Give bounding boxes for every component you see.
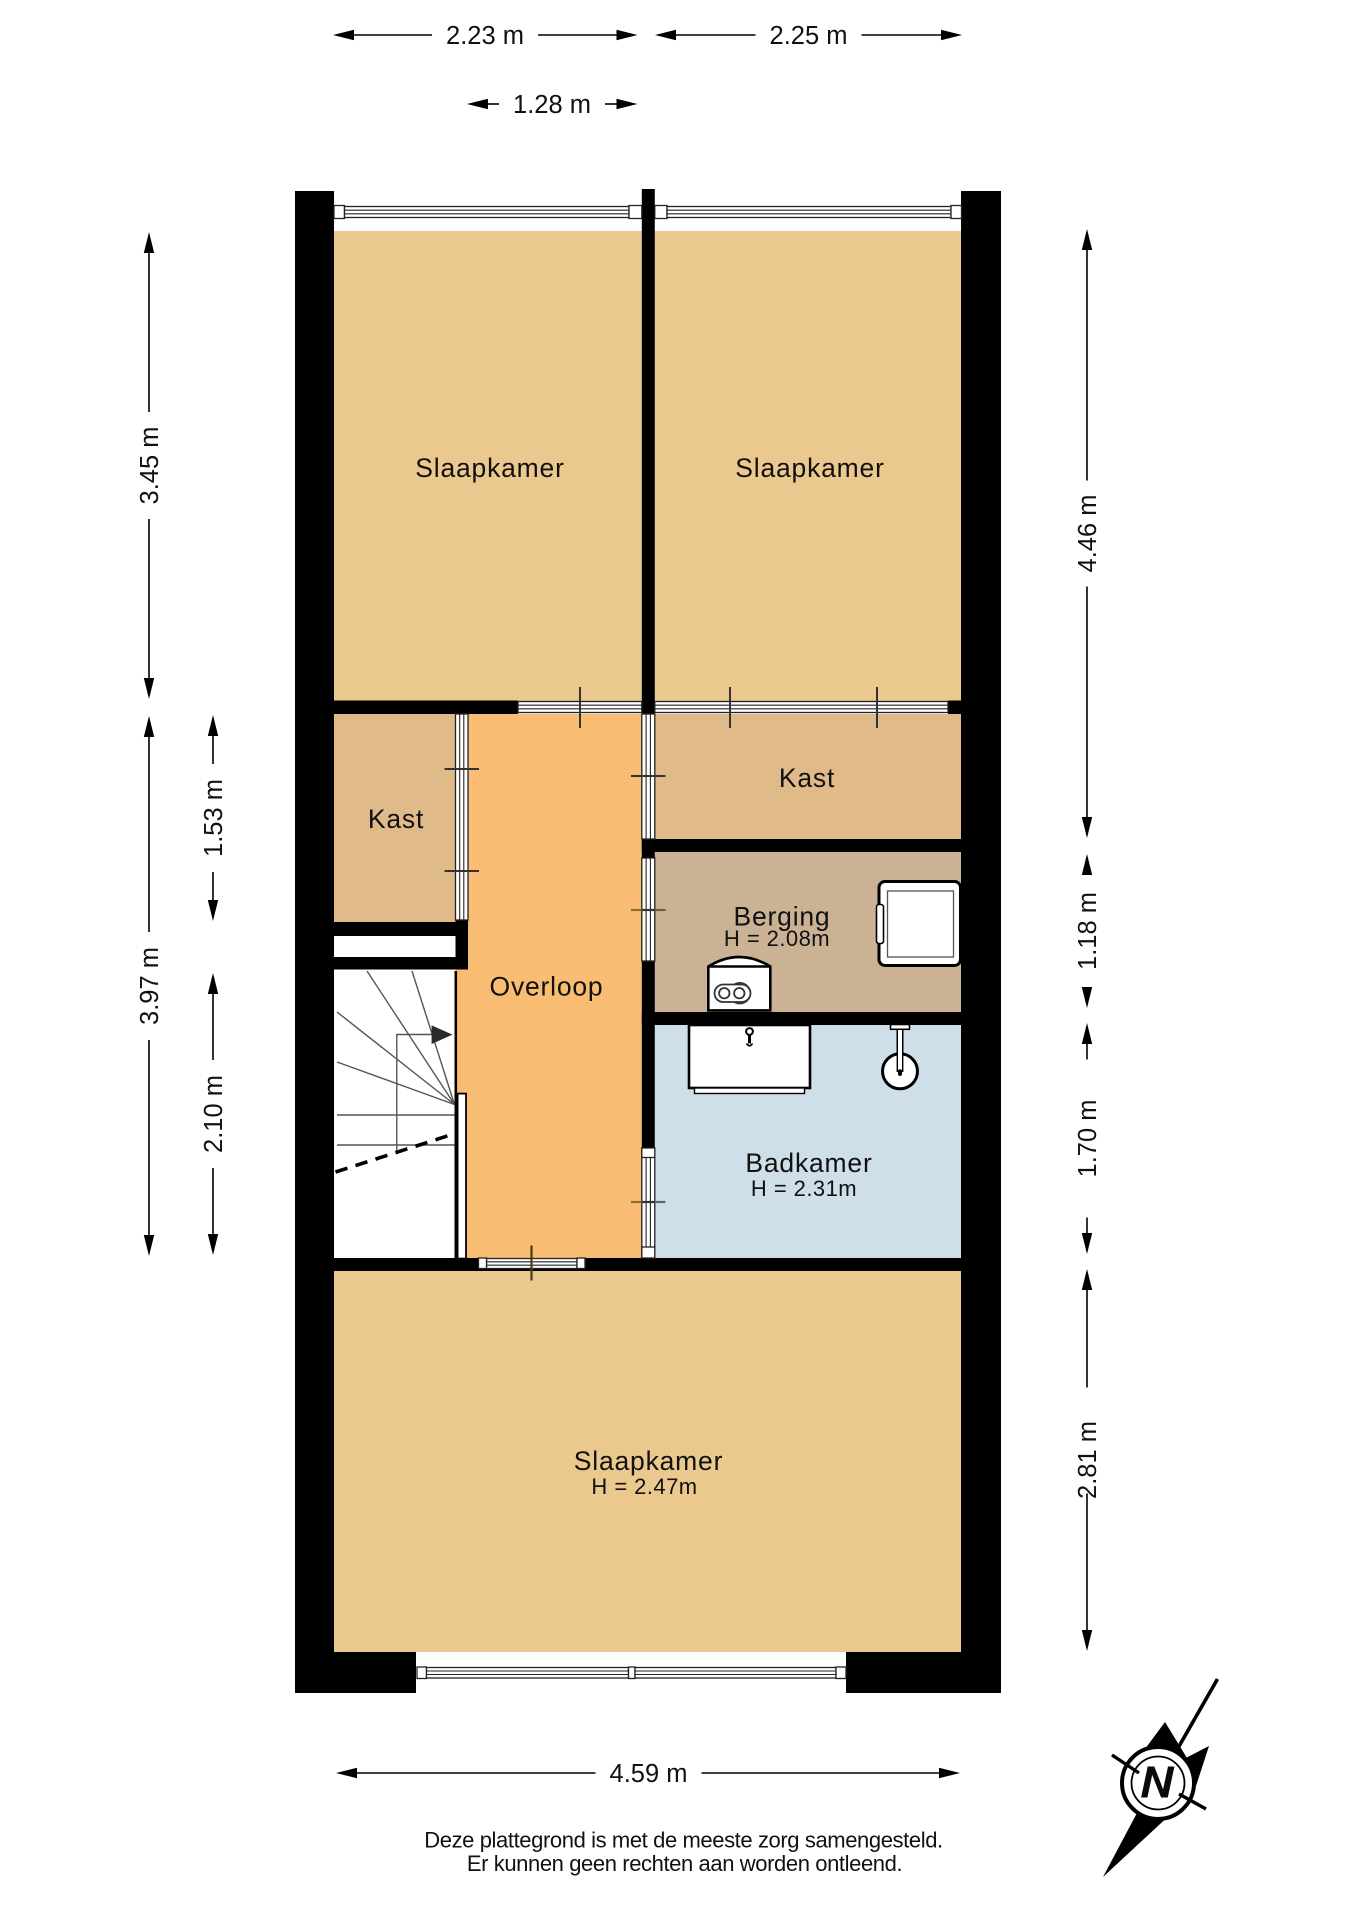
svg-text:Overloop: Overloop: [490, 972, 604, 1002]
svg-text:4.46 m: 4.46 m: [1074, 495, 1102, 573]
svg-text:Slaapkamer: Slaapkamer: [415, 453, 564, 483]
svg-text:1.18 m: 1.18 m: [1074, 892, 1102, 970]
svg-text:4.59 m: 4.59 m: [610, 1760, 688, 1788]
svg-text:1.28 m: 1.28 m: [513, 91, 591, 119]
svg-text:2.25 m: 2.25 m: [770, 22, 848, 50]
svg-text:Kast: Kast: [368, 804, 424, 834]
svg-text:2.23 m: 2.23 m: [446, 22, 524, 50]
svg-text:1.70 m: 1.70 m: [1074, 1100, 1102, 1178]
svg-text:3.45 m: 3.45 m: [136, 427, 164, 505]
svg-text:H = 2.08m: H = 2.08m: [724, 926, 830, 951]
svg-text:Deze plattegrond is met de mee: Deze plattegrond is met de meeste zorg s…: [424, 1828, 943, 1853]
svg-text:Slaapkamer: Slaapkamer: [735, 453, 884, 483]
svg-text:Slaapkamer: Slaapkamer: [574, 1446, 723, 1476]
svg-text:2.81 m: 2.81 m: [1074, 1421, 1102, 1499]
svg-text:1.53 m: 1.53 m: [200, 779, 228, 857]
svg-text:3.97 m: 3.97 m: [136, 947, 164, 1025]
svg-text:Kast: Kast: [779, 763, 835, 793]
svg-text:Er kunnen geen rechten aan wor: Er kunnen geen rechten aan worden ontlee…: [467, 1851, 902, 1876]
svg-text:2.10 m: 2.10 m: [200, 1075, 228, 1153]
svg-text:H = 2.31m: H = 2.31m: [751, 1176, 857, 1201]
svg-text:H = 2.47m: H = 2.47m: [591, 1474, 697, 1499]
svg-text:Badkamer: Badkamer: [745, 1148, 872, 1178]
